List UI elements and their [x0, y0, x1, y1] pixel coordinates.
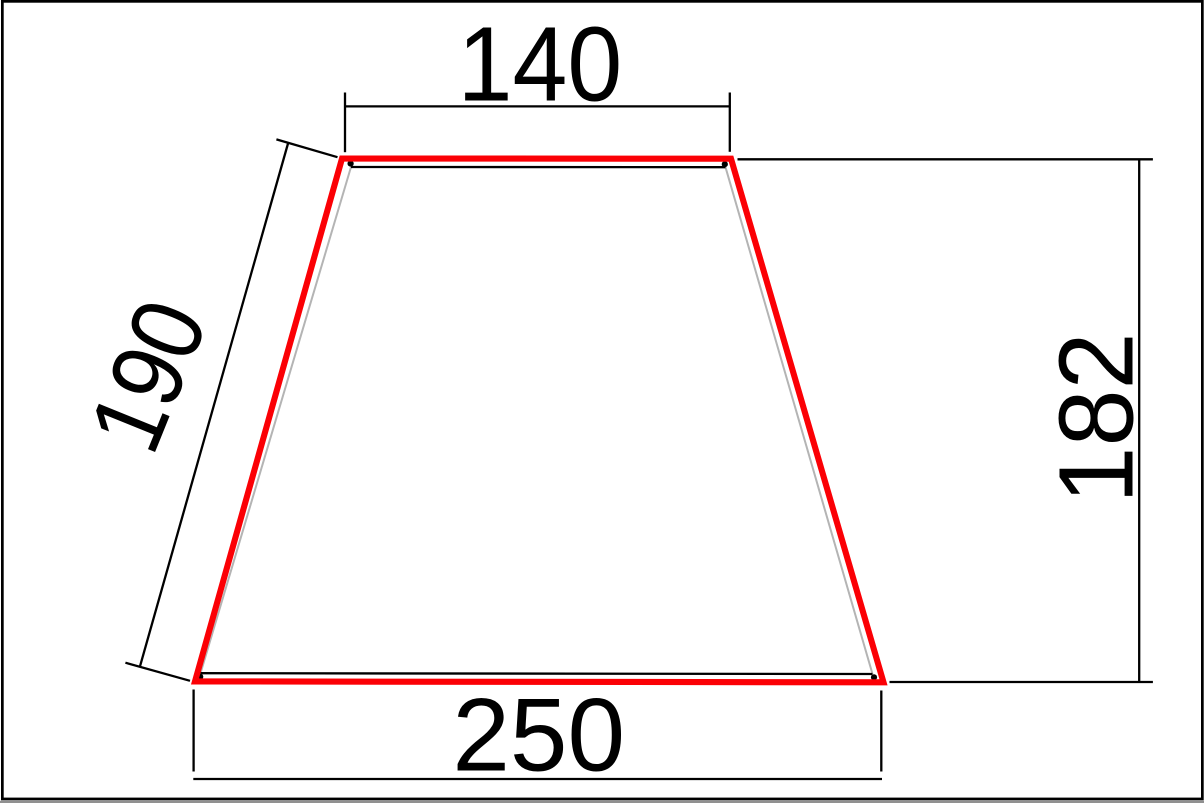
svg-text:250: 250 [452, 677, 625, 793]
svg-text:140: 140 [458, 5, 623, 123]
svg-text:182: 182 [1038, 332, 1156, 503]
